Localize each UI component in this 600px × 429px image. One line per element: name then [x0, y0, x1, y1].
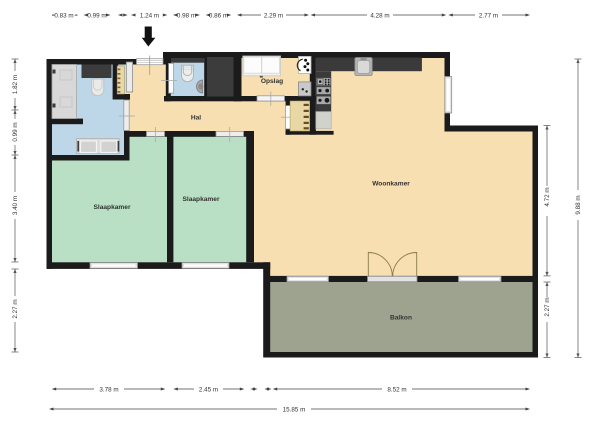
svg-text:0.83 m: 0.83 m: [54, 12, 73, 19]
svg-text:0.99 m: 0.99 m: [12, 122, 19, 141]
svg-text:3.78 m: 3.78 m: [99, 386, 118, 393]
svg-text:2.45 m: 2.45 m: [199, 386, 218, 393]
svg-text:2.29 m: 2.29 m: [264, 12, 283, 19]
svg-text:2.27 m: 2.27 m: [12, 299, 19, 318]
svg-text:Hal: Hal: [191, 115, 201, 122]
svg-text:0.86 m: 0.86 m: [209, 12, 228, 19]
svg-text:0.98 m: 0.98 m: [177, 12, 196, 19]
svg-text:0.99 m: 0.99 m: [87, 12, 106, 19]
svg-text:Opslag: Opslag: [261, 78, 283, 85]
svg-text:2.77 m: 2.77 m: [479, 12, 498, 19]
svg-text:8.52 m: 8.52 m: [387, 386, 406, 393]
svg-text:15.85 m: 15.85 m: [283, 406, 306, 413]
svg-text:Woonkamer: Woonkamer: [372, 181, 410, 188]
svg-text:4.72 m: 4.72 m: [544, 187, 551, 206]
svg-text:2.27 m: 2.27 m: [544, 297, 551, 316]
svg-text:Slaapkamer: Slaapkamer: [93, 204, 130, 211]
svg-text:4.28 m: 4.28 m: [370, 12, 389, 19]
svg-text:1.24 m: 1.24 m: [140, 12, 159, 19]
svg-text:1.82 m: 1.82 m: [12, 75, 19, 94]
svg-text:Balkon: Balkon: [390, 315, 412, 322]
svg-text:9.88 m: 9.88 m: [575, 195, 582, 214]
svg-text:3.40 m: 3.40 m: [12, 196, 19, 215]
svg-text:Slaapkamer: Slaapkamer: [182, 196, 219, 203]
